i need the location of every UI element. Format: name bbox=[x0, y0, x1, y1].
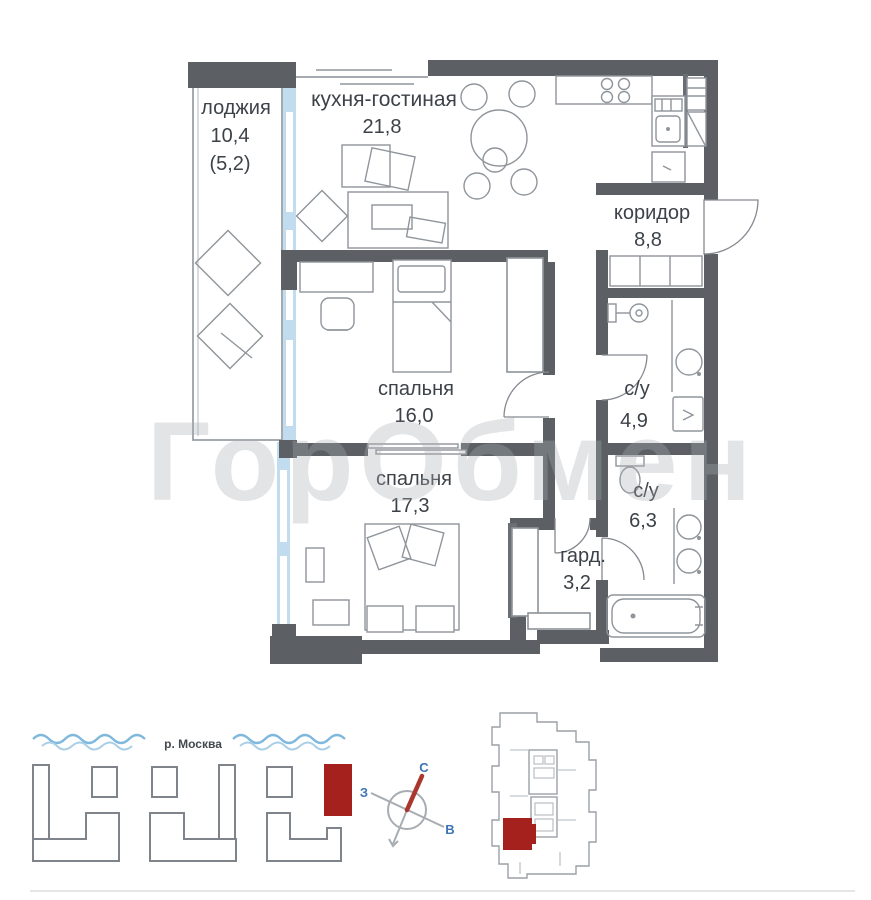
bedroom-1-furniture bbox=[300, 258, 543, 372]
highlighted-building-marker bbox=[324, 764, 352, 816]
area-loggia: 10,4 bbox=[211, 125, 250, 147]
compass-east: В bbox=[445, 822, 454, 837]
label-bathroom-1: с/у bbox=[624, 378, 650, 400]
highlighted-unit-marker-notch bbox=[530, 824, 536, 844]
apartment-plan: лоджия 10,4 (5,2) кухня-гостиная 21,8 ко… bbox=[147, 60, 758, 664]
area-wardrobe: 3,2 bbox=[563, 572, 591, 594]
window-band bbox=[277, 86, 296, 642]
loggia-furniture bbox=[195, 230, 262, 368]
site-plan: р. Москва bbox=[33, 735, 352, 861]
corridor-closet bbox=[610, 256, 702, 286]
bathroom-2-door bbox=[602, 538, 644, 580]
building-cluster-3 bbox=[267, 764, 352, 861]
living-top-window bbox=[296, 70, 428, 84]
label-bedroom-1: спальня bbox=[378, 378, 454, 400]
label-corridor: коридор bbox=[614, 202, 690, 224]
label-loggia: лоджия bbox=[201, 97, 271, 119]
apartment-listing-floor-plan: лоджия 10,4 (5,2) кухня-гостиная 21,8 ко… bbox=[0, 0, 871, 900]
north-needle bbox=[407, 776, 422, 810]
building-cluster-1 bbox=[33, 765, 119, 861]
entrance-door bbox=[704, 200, 758, 254]
building-cluster-2 bbox=[150, 765, 236, 861]
label-kitchen-living: кухня-гостиная bbox=[311, 88, 457, 111]
area-corridor: 8,8 bbox=[634, 229, 662, 251]
watermark: ГорОбмен bbox=[147, 399, 757, 524]
compass-west: З bbox=[360, 785, 368, 800]
area-kitchen-living: 21,8 bbox=[363, 116, 402, 138]
compass: С З В bbox=[360, 760, 455, 846]
river-label: р. Москва bbox=[164, 737, 222, 751]
area-loggia-reduced: (5,2) bbox=[209, 153, 250, 175]
floor-key-plan bbox=[492, 713, 596, 878]
label-wardrobe: гард. bbox=[560, 545, 606, 567]
compass-north: С bbox=[419, 760, 429, 775]
floor-plan-canvas: лоджия 10,4 (5,2) кухня-гостиная 21,8 ко… bbox=[0, 0, 871, 900]
highlighted-unit-marker bbox=[503, 818, 532, 850]
bedroom-2-furniture bbox=[306, 524, 459, 632]
